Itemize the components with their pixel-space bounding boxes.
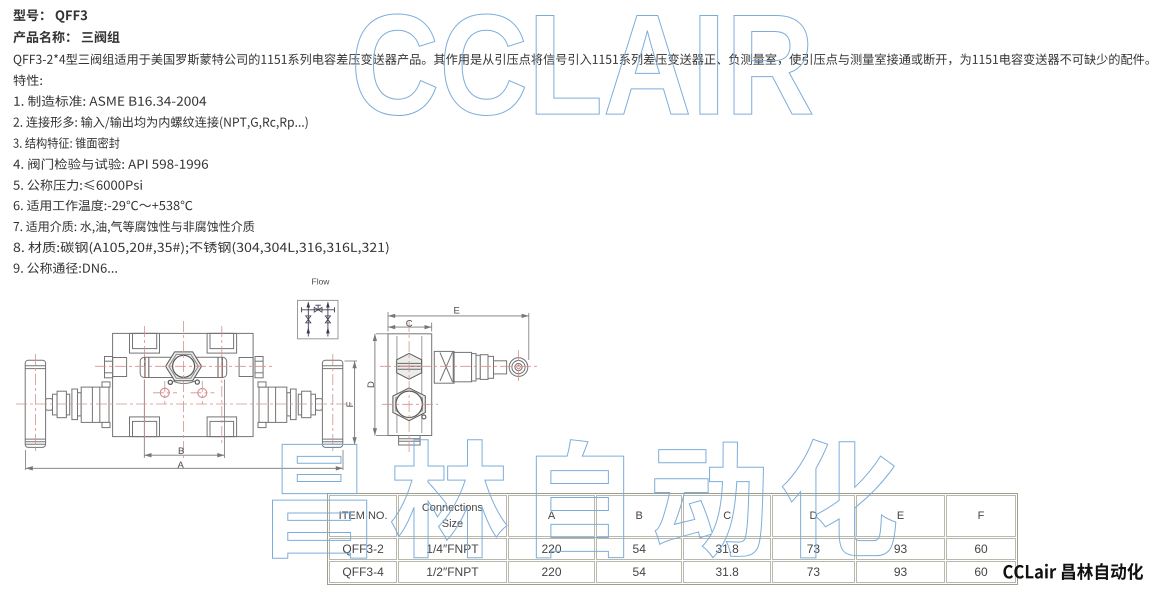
svg-text:E: E: [454, 305, 460, 316]
svg-text:A: A: [178, 460, 185, 471]
svg-text:C: C: [406, 318, 413, 329]
svg-text:D: D: [366, 381, 377, 388]
svg-text:Flow: Flow: [312, 277, 331, 287]
svg-text:B: B: [178, 446, 184, 457]
svg-text:F: F: [345, 401, 356, 407]
